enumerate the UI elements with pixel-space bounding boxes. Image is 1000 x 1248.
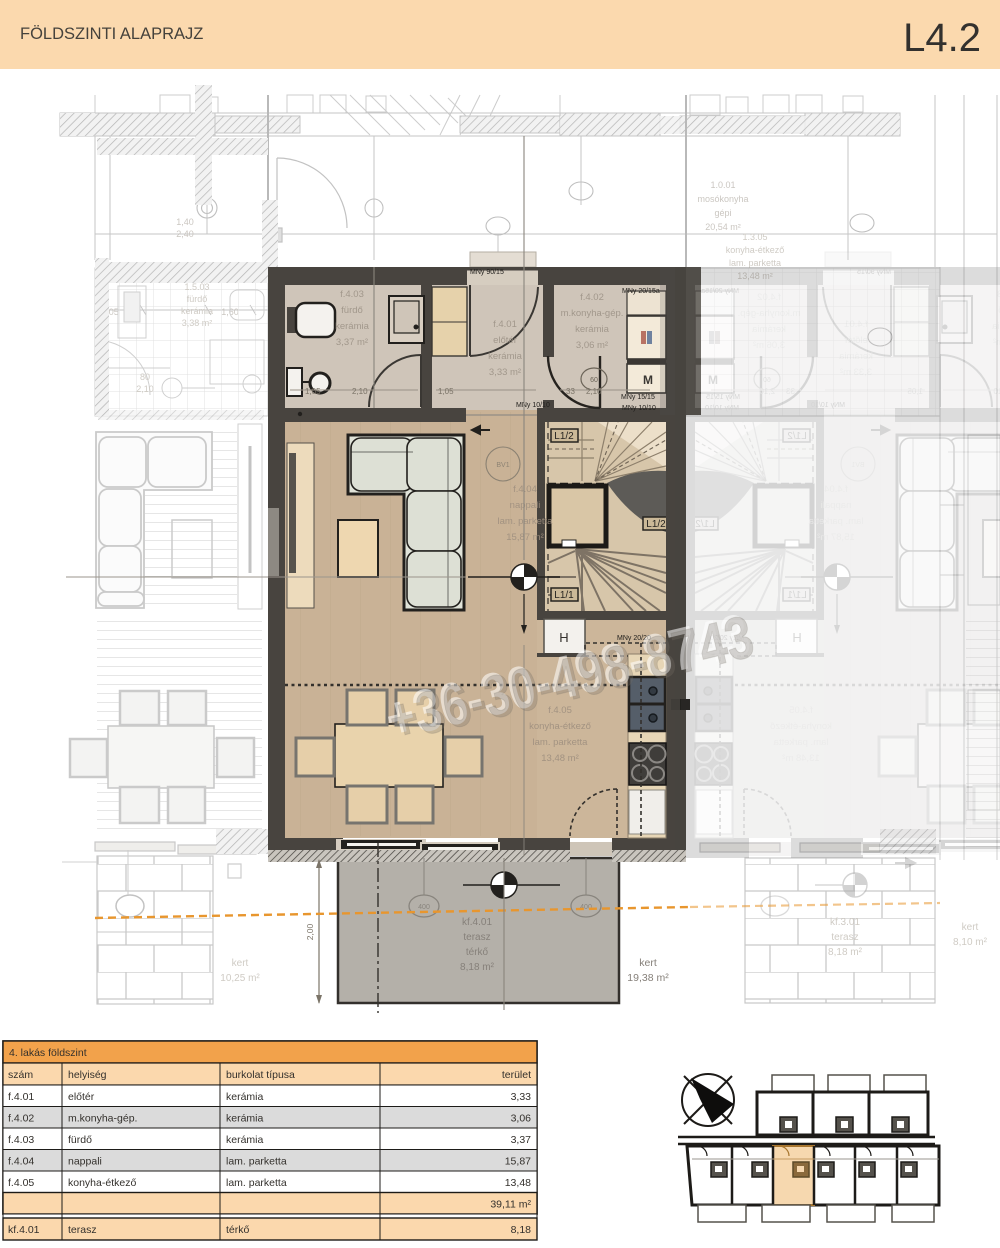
- svg-text:kert: kert: [639, 957, 657, 969]
- svg-text:lam. parketta: lam. parketta: [226, 1156, 287, 1168]
- svg-text:kerámia: kerámia: [226, 1091, 264, 1103]
- svg-text:1.0.01: 1.0.01: [710, 180, 735, 190]
- svg-text:kerámia: kerámia: [181, 306, 213, 316]
- svg-text:lam. parketta: lam. parketta: [226, 1177, 287, 1189]
- svg-text:lam. parketta: lam. parketta: [498, 516, 554, 527]
- svg-text:1,40: 1,40: [176, 217, 194, 227]
- svg-text:nappali: nappali: [68, 1156, 102, 1168]
- svg-text:gépi: gépi: [714, 208, 731, 218]
- svg-text:kf.4.01: kf.4.01: [8, 1224, 40, 1236]
- svg-text:33: 33: [566, 387, 575, 396]
- svg-text:kf.3.01: kf.3.01: [830, 917, 860, 928]
- svg-text:2,00: 2,00: [305, 923, 315, 940]
- svg-text:1.5.03: 1.5.03: [184, 282, 209, 292]
- svg-text:400: 400: [418, 904, 430, 911]
- svg-text:19,38 m²: 19,38 m²: [627, 972, 669, 984]
- svg-text:nappali: nappali: [510, 500, 541, 511]
- svg-text:m.konyha-gép.: m.konyha-gép.: [68, 1113, 137, 1125]
- svg-text:3,33 m²: 3,33 m²: [489, 367, 521, 378]
- svg-text:f.4.03: f.4.03: [340, 289, 364, 300]
- svg-text:4. lakás földszint: 4. lakás földszint: [9, 1047, 87, 1059]
- svg-text:1.3.05: 1.3.05: [742, 232, 767, 242]
- svg-text:15,87 m²: 15,87 m²: [506, 532, 544, 543]
- svg-text:kert: kert: [962, 922, 979, 933]
- svg-text:MNy 15/15: MNy 15/15: [621, 394, 655, 401]
- svg-text:L4.2: L4.2: [903, 16, 981, 60]
- svg-text:lam. parketta: lam. parketta: [533, 737, 589, 748]
- svg-text:MNy 10/10: MNy 10/10: [622, 405, 656, 412]
- svg-text:kerámia: kerámia: [226, 1113, 264, 1125]
- svg-text:MNy 20/15a: MNy 20/15a: [622, 288, 660, 295]
- svg-text:3,06 m²: 3,06 m²: [576, 340, 608, 351]
- svg-text:terasz: terasz: [68, 1224, 97, 1236]
- svg-text:f.4.04: f.4.04: [513, 484, 537, 495]
- svg-text:terület: terület: [502, 1069, 531, 1081]
- svg-text:39,11 m²: 39,11 m²: [490, 1199, 531, 1211]
- svg-text:3,37: 3,37: [511, 1134, 532, 1146]
- svg-text:13,48: 13,48: [505, 1177, 531, 1189]
- svg-text:MNy 10/10: MNy 10/10: [516, 402, 550, 409]
- svg-text:f.4.04: f.4.04: [8, 1156, 34, 1168]
- svg-text:térkő: térkő: [226, 1224, 250, 1236]
- svg-text:80: 80: [140, 372, 150, 382]
- svg-text:L1/1: L1/1: [554, 590, 574, 601]
- svg-text:előtér: előtér: [493, 335, 517, 346]
- svg-text:kerámia: kerámia: [575, 324, 610, 335]
- svg-text:8,18 m²: 8,18 m²: [460, 962, 495, 973]
- svg-text:8,18: 8,18: [511, 1224, 532, 1236]
- svg-text:f.4.05: f.4.05: [8, 1177, 34, 1189]
- svg-text:helyiség: helyiség: [68, 1069, 107, 1081]
- svg-text:kert: kert: [232, 958, 249, 969]
- svg-text:MNy 90/15: MNy 90/15: [470, 269, 504, 276]
- svg-text:terasz: terasz: [831, 932, 858, 943]
- svg-text:fürdő: fürdő: [187, 294, 208, 304]
- svg-text:M: M: [643, 373, 653, 387]
- svg-text:10,25 m²: 10,25 m²: [220, 973, 260, 984]
- svg-text:2,10: 2,10: [352, 387, 368, 396]
- svg-text:15,87: 15,87: [505, 1156, 531, 1168]
- svg-text:L1/2: L1/2: [646, 519, 666, 530]
- svg-text:f.4.02: f.4.02: [8, 1113, 34, 1125]
- svg-text:3,38 m²: 3,38 m²: [182, 318, 213, 328]
- svg-text:2,10: 2,10: [136, 384, 154, 394]
- svg-text:burkolat típusa: burkolat típusa: [226, 1069, 295, 1081]
- svg-text:kerámia: kerámia: [335, 321, 370, 332]
- svg-text:f.4.02: f.4.02: [580, 292, 604, 303]
- svg-text:3,33: 3,33: [511, 1091, 532, 1103]
- svg-text:terasz: terasz: [463, 932, 490, 943]
- svg-text:FÖLDSZINTI ALAPRAJZ: FÖLDSZINTI ALAPRAJZ: [20, 25, 203, 43]
- svg-text:1,05: 1,05: [305, 387, 321, 396]
- svg-text:8,10 m²: 8,10 m²: [953, 937, 988, 948]
- svg-text:1,05: 1,05: [438, 387, 454, 396]
- svg-text:8,18 m²: 8,18 m²: [828, 947, 863, 958]
- svg-text:f.4.01: f.4.01: [493, 319, 517, 330]
- svg-text:60: 60: [590, 377, 598, 384]
- svg-text:3,06: 3,06: [511, 1113, 532, 1125]
- svg-text:2,40: 2,40: [176, 229, 194, 239]
- svg-text:m.konyha-gép.: m.konyha-gép.: [561, 308, 624, 319]
- svg-text:f.4.03: f.4.03: [8, 1134, 34, 1146]
- svg-text:térkő: térkő: [466, 947, 489, 958]
- svg-text:fürdő: fürdő: [341, 305, 363, 316]
- svg-text:kerámia: kerámia: [226, 1134, 264, 1146]
- svg-text:szám: szám: [8, 1069, 33, 1081]
- svg-text:20,54 m²: 20,54 m²: [705, 222, 741, 232]
- svg-text:konyha-étkező: konyha-étkező: [68, 1177, 136, 1189]
- svg-text:fürdő: fürdő: [68, 1134, 92, 1146]
- svg-text:konyha-étkező: konyha-étkező: [726, 245, 785, 255]
- svg-text:f.4.01: f.4.01: [8, 1091, 34, 1103]
- svg-text:L1/2: L1/2: [554, 431, 574, 442]
- svg-text:3,37 m²: 3,37 m²: [336, 337, 368, 348]
- svg-text:konyha-étkező: konyha-étkező: [529, 721, 591, 732]
- svg-text:BV1: BV1: [496, 462, 509, 469]
- svg-text:mosókonyha: mosókonyha: [697, 194, 748, 204]
- svg-text:előtér: előtér: [68, 1091, 95, 1103]
- svg-text:13,48 m²: 13,48 m²: [541, 753, 579, 764]
- svg-text:2,10: 2,10: [586, 387, 602, 396]
- svg-text:lam. parketta: lam. parketta: [729, 258, 781, 268]
- svg-text:kerámia: kerámia: [488, 351, 523, 362]
- svg-text:kf.4.01: kf.4.01: [462, 917, 492, 928]
